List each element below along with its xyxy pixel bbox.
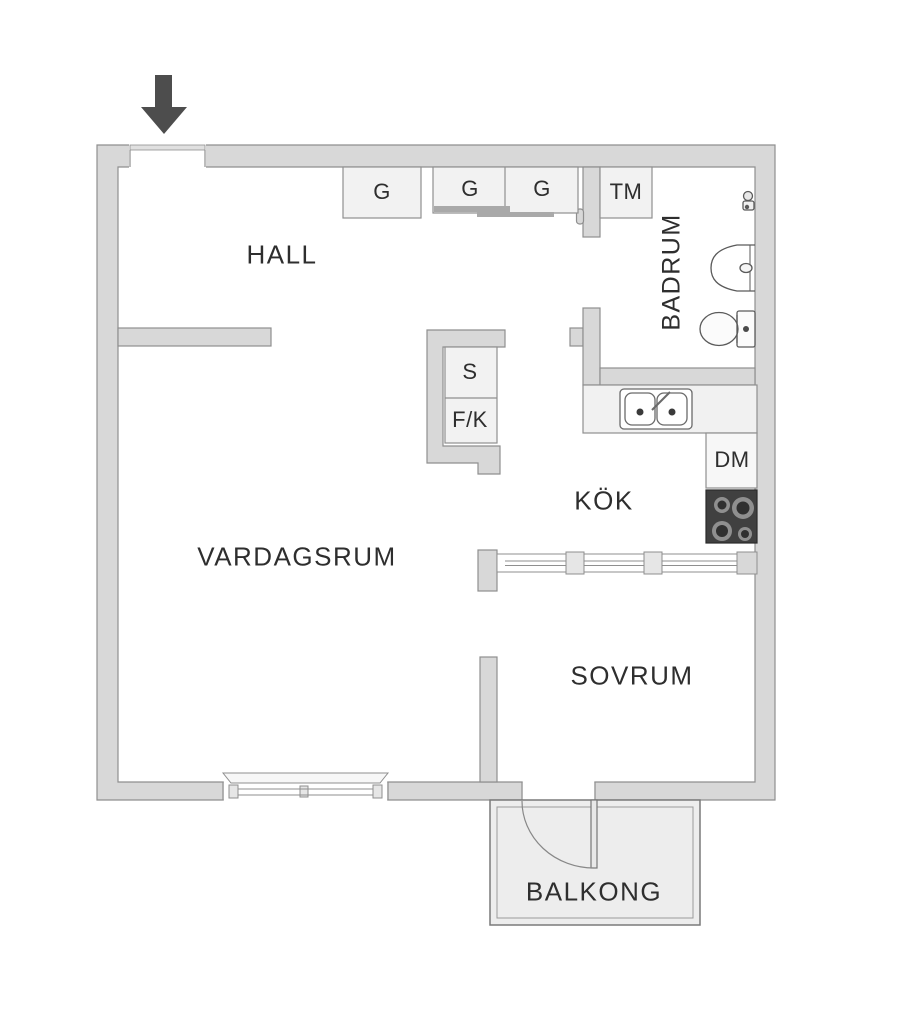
sliding-door-1: [434, 206, 510, 212]
window-jamb-left: [229, 785, 238, 798]
entrance-threshold: [130, 145, 205, 150]
bathroom-fixtures: [700, 192, 755, 348]
floor-plan-drawing: [0, 0, 910, 1018]
stove-icon: [706, 490, 757, 543]
partition-mullion-2: [644, 552, 662, 574]
hall-wall-stub: [570, 328, 583, 346]
partition-wall-stub: [478, 550, 497, 591]
hall-wall: [118, 328, 271, 346]
floor-plan: HALL BADRUM KÖK VARDAGSRUM SOVRUM BALKON…: [0, 0, 910, 1018]
bathroom-south-wall: [600, 368, 755, 385]
kitchen-bedroom-partition: [497, 552, 757, 574]
balcony-door-opening: [523, 781, 595, 801]
partition-mullion-1: [566, 552, 584, 574]
arrow-down-icon: [141, 75, 187, 134]
wardrobe-2-label: G: [461, 176, 479, 202]
living-room-label: VARDAGSRUM: [197, 542, 396, 573]
wardrobe-1-label: G: [373, 179, 391, 205]
balcony-door-leaf: [591, 800, 597, 868]
window-sill: [223, 773, 388, 783]
kitchen-label: KÖK: [574, 486, 633, 517]
bedroom-label: SOVRUM: [570, 661, 693, 692]
washbasin-icon: [711, 245, 755, 291]
balcony-label: BALKONG: [526, 877, 662, 908]
toilet-icon: [700, 311, 755, 347]
tap-icon: [743, 192, 754, 211]
hall-label: HALL: [246, 240, 317, 271]
bedroom-west-wall: [480, 657, 497, 782]
dishwasher-label: DM: [714, 447, 749, 473]
pantry-label: S: [462, 359, 477, 385]
fridge-freezer-label: F/K: [452, 407, 488, 433]
double-sink-icon: [620, 389, 692, 429]
partition-band: [497, 554, 757, 572]
sliding-door-2: [477, 212, 554, 217]
partition-end-cap: [737, 552, 757, 574]
bathroom-label: BADRUM: [658, 213, 687, 330]
wardrobe-3-label: G: [533, 176, 551, 202]
washing-machine-label: TM: [610, 179, 643, 205]
window-jamb-right: [373, 785, 382, 798]
bathroom-west-wall-upper: [583, 167, 600, 237]
bathroom-west-wall-lower: [583, 308, 600, 385]
